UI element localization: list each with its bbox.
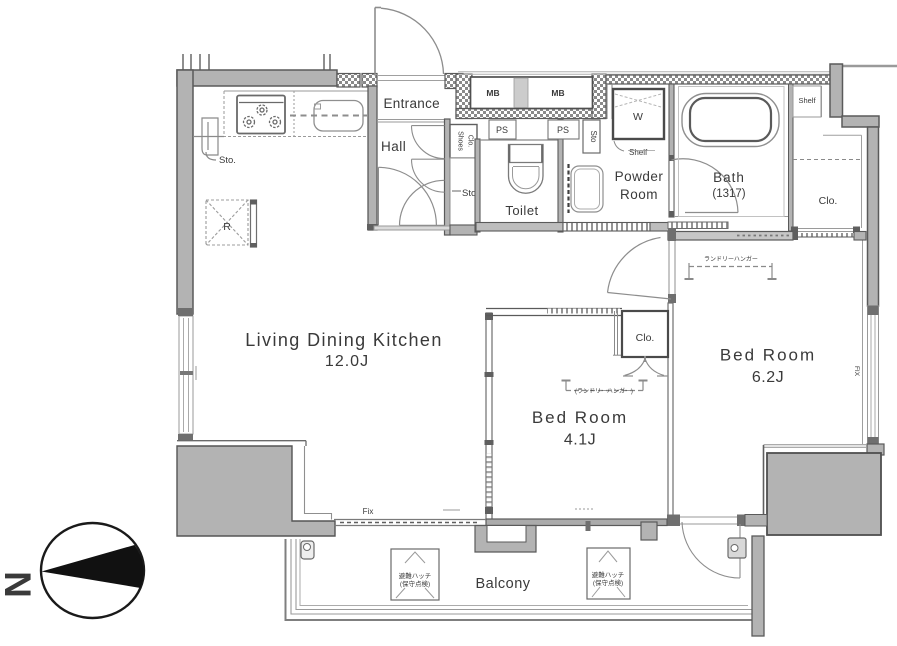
svg-text:Bath: Bath bbox=[713, 170, 745, 185]
svg-text:(保守点検): (保守点検) bbox=[400, 579, 430, 588]
svg-text:Living Dining Kitchen: Living Dining Kitchen bbox=[245, 330, 443, 350]
svg-text:Toilet: Toilet bbox=[505, 203, 538, 218]
svg-text:Shelf: Shelf bbox=[798, 96, 816, 105]
svg-text:N: N bbox=[0, 571, 38, 598]
svg-text:Bed Room: Bed Room bbox=[720, 346, 816, 365]
svg-text:4.1J: 4.1J bbox=[564, 432, 596, 449]
svg-text:Shoes: Shoes bbox=[457, 131, 464, 151]
svg-text:避難ハッチ: 避難ハッチ bbox=[399, 571, 432, 580]
svg-text:Sto: Sto bbox=[589, 130, 598, 143]
svg-text:Powder: Powder bbox=[615, 169, 664, 184]
svg-text:(1317): (1317) bbox=[712, 188, 745, 200]
svg-text:MB: MB bbox=[551, 88, 564, 98]
svg-text:Entrance: Entrance bbox=[384, 96, 440, 111]
svg-text:R: R bbox=[223, 221, 231, 233]
svg-text:Clo.: Clo. bbox=[819, 195, 838, 207]
svg-text:Hall: Hall bbox=[381, 139, 406, 154]
svg-text:MB: MB bbox=[486, 88, 499, 98]
svg-text:Balcony: Balcony bbox=[475, 576, 530, 592]
svg-text:Room: Room bbox=[620, 187, 658, 202]
svg-text:Clo.: Clo. bbox=[636, 332, 655, 344]
svg-text:避難ハッチ: 避難ハッチ bbox=[592, 570, 625, 579]
svg-text:Sto.: Sto. bbox=[219, 155, 236, 166]
svg-text:ランドリーハンガー: ランドリーハンガー bbox=[704, 255, 758, 263]
svg-text:PS: PS bbox=[496, 125, 508, 135]
svg-text:Fix: Fix bbox=[363, 507, 374, 516]
svg-text:Bed Room: Bed Room bbox=[532, 408, 628, 427]
svg-text:(保守点検): (保守点検) bbox=[593, 578, 623, 587]
svg-text:FIX: FIX bbox=[853, 366, 860, 377]
svg-text:(ランドリーハンガー): (ランドリーハンガー) bbox=[575, 387, 633, 395]
svg-text:6.2J: 6.2J bbox=[752, 369, 784, 386]
svg-text:W: W bbox=[633, 111, 643, 123]
svg-text:12.0J: 12.0J bbox=[325, 353, 369, 370]
svg-text:Clo.: Clo. bbox=[467, 135, 474, 148]
svg-text:Shelf: Shelf bbox=[629, 148, 648, 157]
svg-text:PS: PS bbox=[557, 125, 569, 135]
